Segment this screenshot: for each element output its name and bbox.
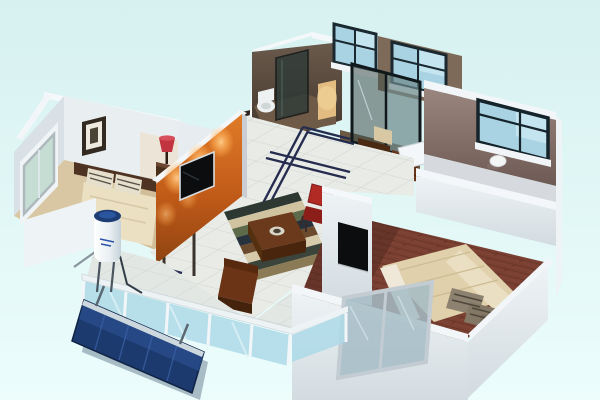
- floorplan-render: [0, 0, 600, 400]
- toilet: [257, 88, 275, 113]
- wall-picture: [82, 116, 106, 156]
- ceiling-lamp: [490, 156, 506, 167]
- heater-cap-highlight: [99, 211, 116, 218]
- orange-wall-edge: [242, 114, 247, 198]
- floorplan-3d-svg: [0, 0, 600, 400]
- bedroom-three-front-window: [338, 282, 432, 378]
- right-outer-wall: [556, 116, 562, 300]
- bedroom-wall-tv: [338, 222, 368, 272]
- spotlight-glow-low: [155, 201, 177, 227]
- niche-glow: [317, 86, 337, 110]
- picture-art: [90, 127, 98, 144]
- shower-glass-partition: [276, 50, 308, 120]
